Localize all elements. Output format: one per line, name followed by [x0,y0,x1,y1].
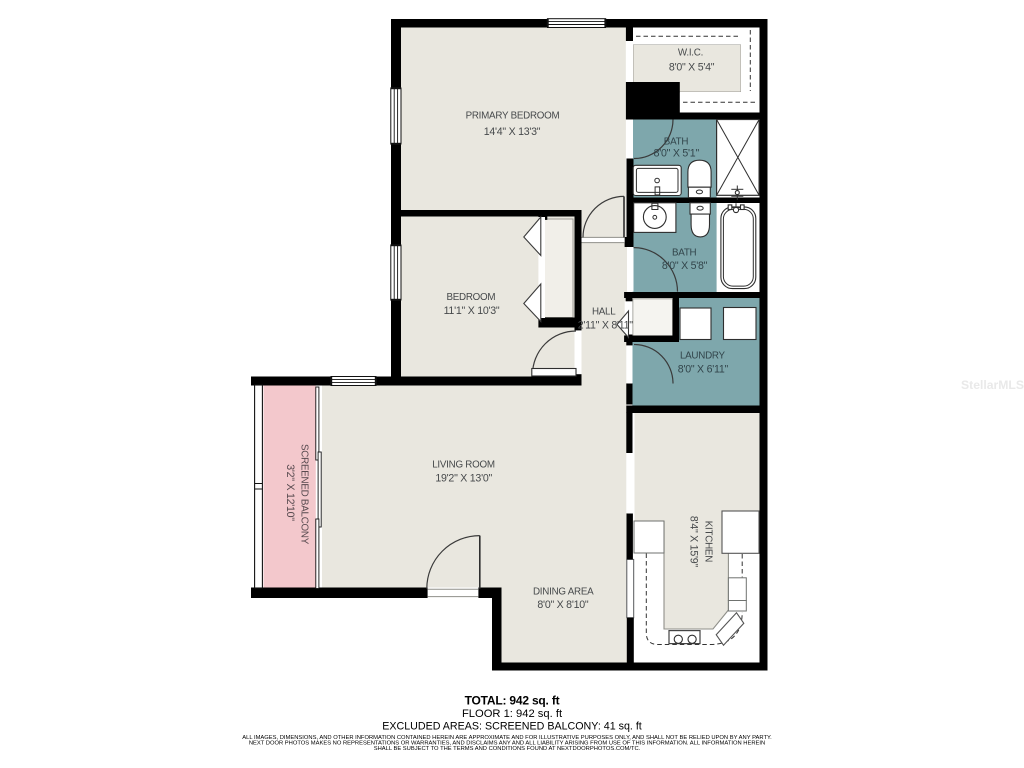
svg-text:BATH: BATH [672,248,697,259]
svg-text:SCREENED BALCONY: SCREENED BALCONY [299,444,310,545]
svg-text:PRIMARY BEDROOM: PRIMARY BEDROOM [466,110,560,121]
svg-text:8'0" X 8'10": 8'0" X 8'10" [537,599,588,611]
svg-text:HALL: HALL [592,306,616,317]
svg-text:StellarMLS: StellarMLS [961,378,1024,392]
svg-text:KITCHEN: KITCHEN [703,521,714,562]
svg-text:FLOOR 1: 942 sq. ft: FLOOR 1: 942 sq. ft [462,708,563,720]
svg-text:8'0" X 5'4": 8'0" X 5'4" [669,62,715,74]
svg-text:19'2" X 13'0": 19'2" X 13'0" [435,473,492,485]
svg-text:LAUNDRY: LAUNDRY [680,351,726,362]
svg-text:LIVING ROOM: LIVING ROOM [432,460,495,471]
svg-text:8'0" X 5'1": 8'0" X 5'1" [654,147,700,159]
svg-text:8'0" X 6'11": 8'0" X 6'11" [678,364,729,376]
svg-text:TOTAL: 942 sq. ft: TOTAL: 942 sq. ft [465,694,560,708]
svg-text:BEDROOM: BEDROOM [446,292,495,303]
svg-text:8'4" X 15'9": 8'4" X 15'9" [688,516,700,567]
svg-text:DINING AREA: DINING AREA [533,587,594,598]
svg-text:2'11" X 8'11": 2'11" X 8'11" [578,319,634,331]
svg-text:W.I.C.: W.I.C. [678,47,703,58]
svg-text:SHALL BE SUBJECT TO THE TERMS: SHALL BE SUBJECT TO THE TERMS AND CONDIT… [374,746,641,752]
svg-text:EXCLUDED AREAS: SCREENED BALCO: EXCLUDED AREAS: SCREENED BALCONY: 41 sq.… [382,721,642,733]
svg-text:3'2" X 12'10": 3'2" X 12'10" [284,464,296,521]
svg-text:14'4" X 13'3": 14'4" X 13'3" [484,126,541,138]
svg-text:BATH: BATH [664,137,689,148]
svg-text:11'1" X 10'3": 11'1" X 10'3" [444,305,500,317]
svg-text:8'0" X 5'8": 8'0" X 5'8" [662,260,708,272]
